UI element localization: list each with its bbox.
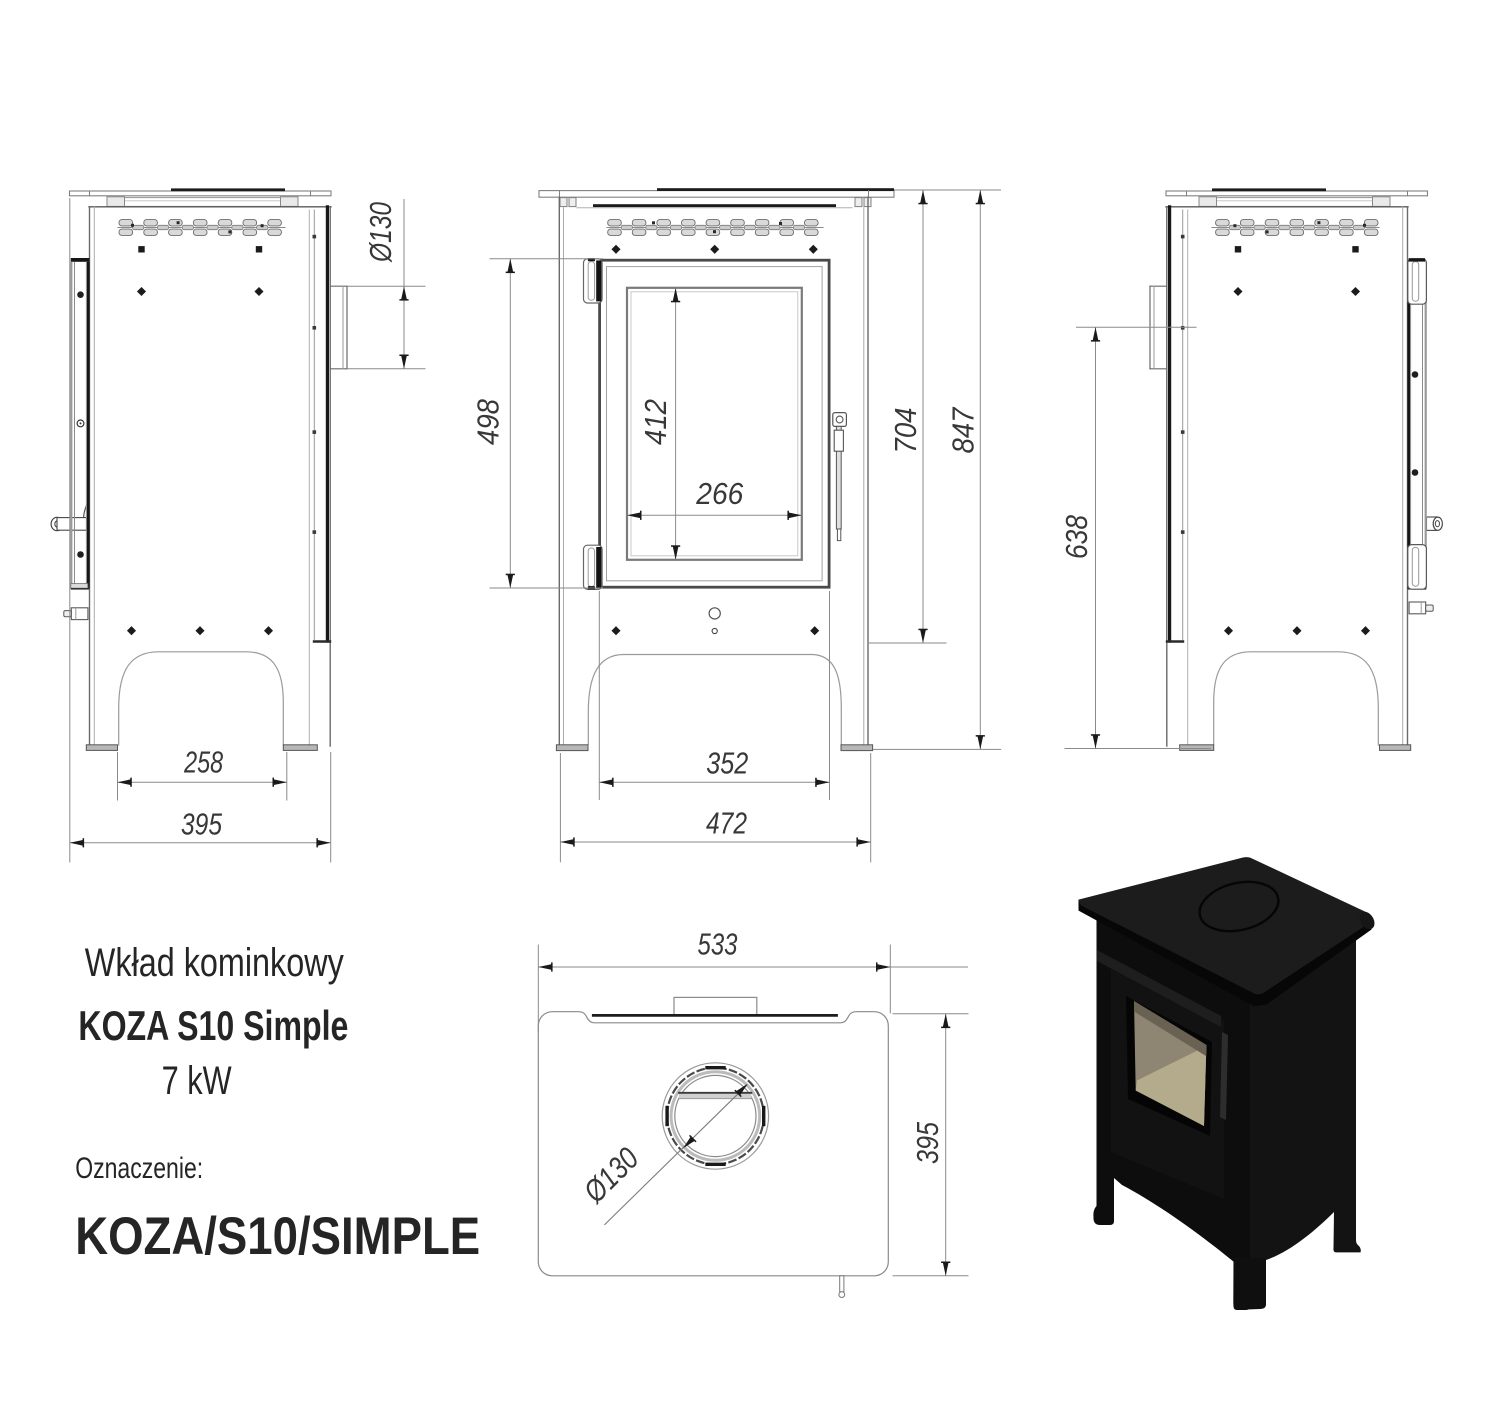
svg-text:KOZA/S10/SIMPLE: KOZA/S10/SIMPLE <box>75 1207 480 1266</box>
svg-text:638: 638 <box>1059 514 1094 559</box>
svg-text:KOZA S10 Simple: KOZA S10 Simple <box>78 1002 348 1049</box>
svg-text:395: 395 <box>910 1121 945 1164</box>
svg-text:472: 472 <box>706 806 747 841</box>
svg-text:395: 395 <box>181 807 223 842</box>
svg-text:Ø130: Ø130 <box>363 202 398 263</box>
svg-text:533: 533 <box>698 927 738 962</box>
svg-text:704: 704 <box>888 408 923 454</box>
svg-text:7 kW: 7 kW <box>162 1059 232 1103</box>
svg-text:266: 266 <box>695 476 744 511</box>
svg-text:258: 258 <box>183 745 223 780</box>
svg-text:498: 498 <box>471 398 506 445</box>
svg-text:Oznaczenie:: Oznaczenie: <box>75 1152 203 1185</box>
svg-text:847: 847 <box>946 406 981 454</box>
svg-text:Wkład kominkowy: Wkład kominkowy <box>85 941 344 985</box>
svg-text:352: 352 <box>706 746 748 781</box>
svg-text:412: 412 <box>638 399 673 445</box>
